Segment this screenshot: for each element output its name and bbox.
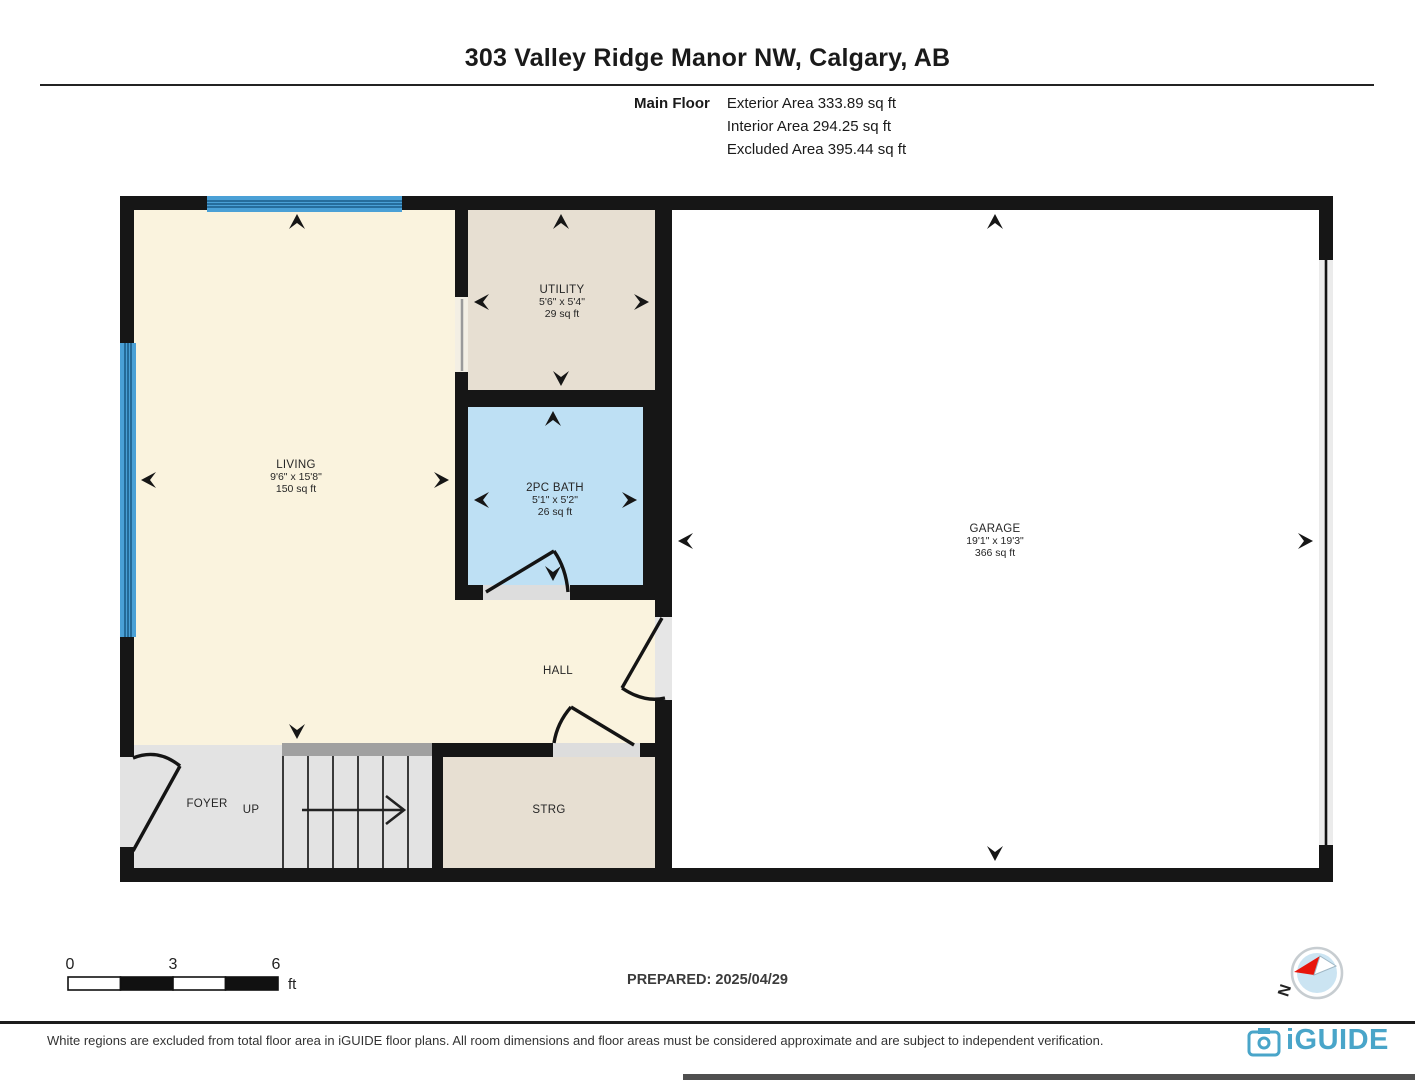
iguide-logo: iGUIDE <box>1286 1024 1389 1057</box>
room-name: GARAGE <box>966 523 1024 535</box>
entry-opening <box>120 757 134 847</box>
room-label-hall: HALL <box>543 665 573 677</box>
floorplan-canvas: N <box>0 0 1415 1080</box>
stairs-up-label: UP <box>243 804 260 816</box>
room-name: LIVING <box>270 459 322 471</box>
room-area: 29 sq ft <box>539 308 585 320</box>
room-dims: 5'6" x 5'4" <box>539 296 585 308</box>
hall-garage-opening <box>655 617 672 700</box>
room-area: 366 sq ft <box>966 547 1024 559</box>
room-label-bath: 2PC BATH 5'1" x 5'2" 26 sq ft <box>526 482 584 518</box>
room-area: 26 sq ft <box>526 506 584 518</box>
room-label-living: LIVING 9'6" x 15'8" 150 sq ft <box>270 459 322 495</box>
iguide-wordmark: iGUIDE <box>1286 1024 1389 1057</box>
room-label-utility: UTILITY 5'6" x 5'4" 29 sq ft <box>539 284 585 320</box>
room-dims: 5'1" x 5'2" <box>526 494 584 506</box>
room-name: 2PC BATH <box>526 482 584 494</box>
room-area: 150 sq ft <box>270 483 322 495</box>
window-top <box>207 196 402 212</box>
footer-divider <box>0 1021 1415 1024</box>
window-left <box>120 343 136 637</box>
room-dims: 9'6" x 15'8" <box>270 471 322 483</box>
room-name: UTILITY <box>539 284 585 296</box>
iguide-camera-icon <box>1249 1028 1279 1055</box>
prepared-date: PREPARED: 2025/04/29 <box>0 972 1415 988</box>
bottom-edge-strip <box>683 1074 1415 1080</box>
room-dims: 19'1" x 19'3" <box>966 535 1024 547</box>
room-label-garage: GARAGE 19'1" x 19'3" 366 sq ft <box>966 523 1024 559</box>
storage-opening <box>553 743 640 757</box>
room-label-foyer: FOYER <box>186 798 227 810</box>
stair-nosing <box>282 743 432 756</box>
floorplan-page: 303 Valley Ridge Manor NW, Calgary, AB M… <box>0 0 1415 1080</box>
disclaimer-text: White regions are excluded from total fl… <box>47 1033 1103 1048</box>
room-label-storage: STRG <box>532 804 565 816</box>
garage-door <box>1319 260 1333 845</box>
